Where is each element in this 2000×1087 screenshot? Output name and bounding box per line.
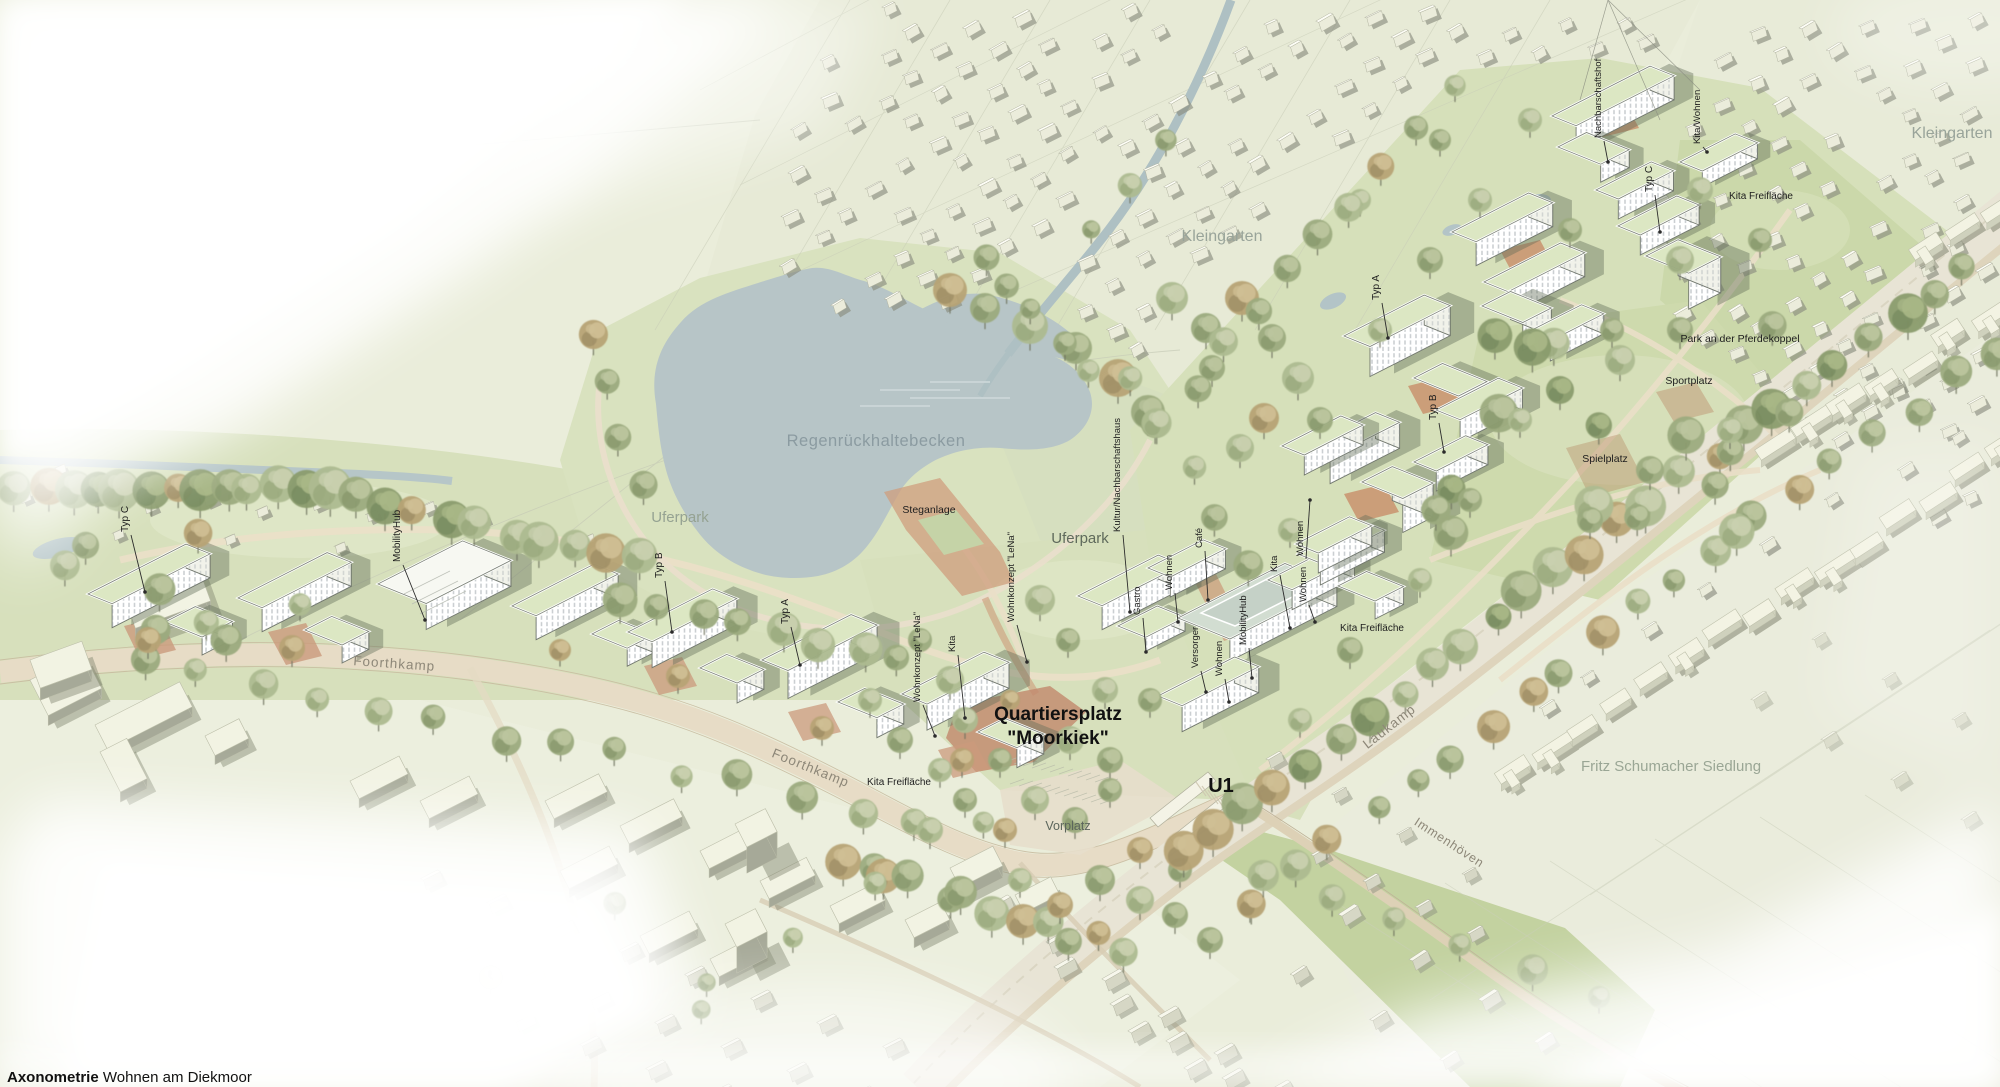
svg-text:Axonometrie Wohnen am Diekmoor: Axonometrie Wohnen am Diekmoor: [7, 1069, 252, 1086]
svg-text:Wohnen: Wohnen: [1298, 567, 1309, 602]
svg-text:Typ B: Typ B: [1428, 394, 1439, 420]
svg-text:U1: U1: [1208, 775, 1234, 797]
svg-text:Gastro: Gastro: [1132, 586, 1143, 615]
svg-text:Kita: Kita: [947, 635, 958, 652]
svg-text:Kita/Wohnen: Kita/Wohnen: [1692, 90, 1703, 144]
svg-text:Wohnkonzept "LeNa": Wohnkonzept "LeNa": [912, 612, 923, 702]
svg-text:Fritz Schumacher Siedlung: Fritz Schumacher Siedlung: [1581, 758, 1761, 775]
svg-text:Quartiersplatz: Quartiersplatz: [994, 704, 1122, 725]
svg-text:Sportplatz: Sportplatz: [1665, 375, 1712, 387]
svg-text:Typ A: Typ A: [780, 599, 791, 624]
svg-text:MobilityHub: MobilityHub: [392, 509, 403, 562]
svg-text:Café: Café: [1194, 528, 1205, 548]
svg-text:Vorplatz: Vorplatz: [1045, 819, 1090, 833]
svg-text:Wohnen: Wohnen: [1295, 521, 1306, 556]
svg-text:Spielplatz: Spielplatz: [1582, 453, 1628, 465]
svg-text:Wohnen: Wohnen: [1164, 555, 1175, 590]
svg-text:Kita Freifläche: Kita Freifläche: [1340, 623, 1404, 634]
svg-text:Steganlage: Steganlage: [902, 504, 955, 516]
svg-text:Park an der Pferdekoppel: Park an der Pferdekoppel: [1680, 333, 1799, 345]
svg-text:Uferpark: Uferpark: [1051, 530, 1109, 547]
svg-text:Kleingarten: Kleingarten: [1182, 228, 1263, 245]
svg-text:Typ C: Typ C: [1644, 166, 1655, 192]
svg-text:Kultur/Nachbarschaftshaus: Kultur/Nachbarschaftshaus: [1112, 418, 1123, 532]
svg-text:Uferpark: Uferpark: [651, 509, 709, 526]
svg-text:Kita Freifläche: Kita Freifläche: [867, 777, 931, 788]
svg-text:Kita: Kita: [1269, 555, 1280, 572]
svg-text:Kita Freifläche: Kita Freifläche: [1729, 191, 1793, 202]
svg-text:Regenrückhaltebecken: Regenrückhaltebecken: [787, 432, 966, 450]
svg-text:Wohnkonzept "LeNa": Wohnkonzept "LeNa": [1006, 532, 1017, 622]
svg-text:Kleingarten: Kleingarten: [1912, 125, 1993, 142]
svg-text:Typ B: Typ B: [654, 552, 665, 578]
svg-text:Versorger: Versorger: [1190, 627, 1201, 668]
svg-text:Typ A: Typ A: [1371, 275, 1382, 300]
svg-text:"Moorkiek": "Moorkiek": [1007, 728, 1108, 749]
svg-text:Nachbarschaftshof: Nachbarschaftshof: [1593, 58, 1604, 138]
svg-text:Typ C: Typ C: [120, 506, 131, 532]
svg-text:Wohnen: Wohnen: [1214, 641, 1225, 676]
svg-text:MobilityHub: MobilityHub: [1238, 595, 1249, 645]
